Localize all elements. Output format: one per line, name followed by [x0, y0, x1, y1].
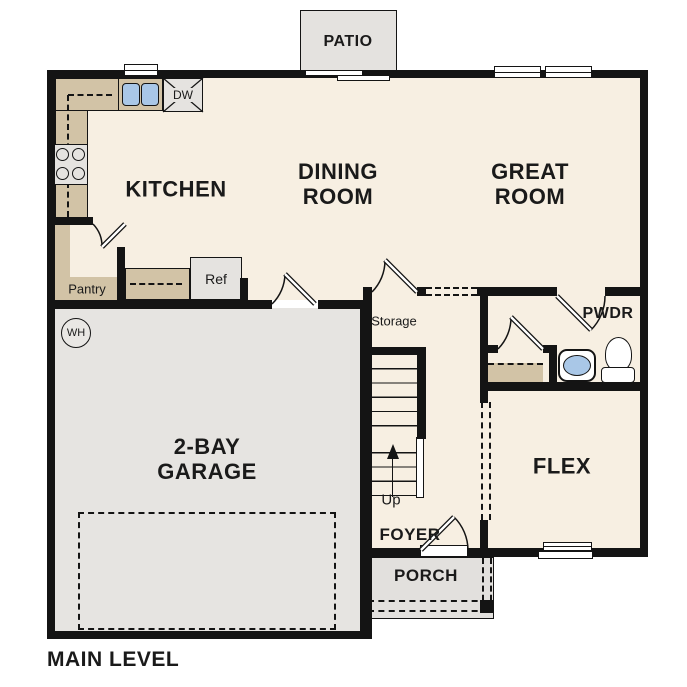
floor-plan: DW Ref WH [0, 0, 687, 687]
up-label: Up [381, 492, 400, 509]
dishwasher-label: DW [172, 88, 194, 102]
flex-cased-opening [481, 402, 483, 520]
garage-door-outline [78, 512, 336, 630]
stairs-upper-run [372, 355, 417, 439]
flex-window [543, 542, 592, 551]
pantry-label: Pantry [68, 282, 106, 297]
flex-cased-opening [489, 402, 491, 520]
dining-line1: DINING [298, 159, 378, 184]
water-heater-label: WH [67, 327, 85, 339]
stair-railing [416, 437, 424, 498]
refrigerator-label: Ref [205, 271, 227, 287]
kitchen-window [124, 64, 158, 76]
wall [364, 548, 420, 557]
closet-shelf [488, 363, 543, 382]
pedestal-sink-bowl [563, 355, 591, 376]
refrigerator: Ref [190, 257, 242, 300]
wall [117, 247, 125, 300]
great-room-label: GREAT ROOM [491, 159, 569, 209]
great-room-window [545, 66, 592, 78]
foyer-label: FOYER [379, 525, 440, 545]
wall [417, 347, 426, 439]
wall [47, 70, 55, 639]
wall [480, 345, 498, 353]
toilet-tank [601, 367, 635, 383]
porch-label: PORCH [394, 566, 458, 586]
wall [480, 296, 488, 391]
wall [605, 287, 648, 296]
stove-burner [72, 167, 85, 180]
great-room-opening [426, 287, 477, 296]
wall [363, 287, 372, 300]
wall [363, 347, 426, 355]
wall [480, 520, 488, 548]
dining-room-label: DINING ROOM [298, 159, 378, 209]
dining-line2: ROOM [298, 184, 378, 209]
water-heater: WH [61, 318, 91, 348]
up-arrow-head [387, 444, 399, 459]
patio-label: PATIO [323, 33, 372, 51]
garage-line2: GARAGE [157, 459, 257, 484]
stove-burner [56, 148, 69, 161]
wall [47, 217, 93, 225]
cabinet-dash-top [68, 94, 112, 96]
front-door-slab [420, 545, 468, 557]
flex-label: FLEX [533, 454, 591, 479]
patio-slider-panel [337, 75, 390, 81]
storage-label: Storage [371, 314, 417, 329]
garage-line1: 2-BAY [157, 434, 257, 459]
wall [468, 548, 480, 557]
wall [640, 70, 648, 557]
sink-bowl-right [141, 83, 159, 106]
dishwasher: DW [163, 78, 203, 112]
great-line1: GREAT [491, 159, 569, 184]
pwdr-flex-floor [480, 287, 640, 557]
wall [480, 382, 648, 391]
wall [240, 278, 248, 300]
wall [47, 300, 272, 309]
great-room-window [494, 66, 541, 78]
porch-edge-dash [368, 600, 488, 602]
sink-bowl-left [122, 83, 140, 106]
cabinet-dash-pantry [130, 283, 182, 285]
pwdr-label: PWDR [583, 305, 634, 323]
porch-edge-dash [368, 610, 488, 612]
stove-burner [56, 167, 69, 180]
great-line2: ROOM [491, 184, 569, 209]
flex-window-sill [538, 551, 593, 559]
stove-burner [72, 148, 85, 161]
wall [477, 287, 557, 296]
page-title: MAIN LEVEL [47, 648, 179, 672]
garage-label: 2-BAY GARAGE [157, 434, 257, 484]
porch-post [480, 600, 493, 613]
toilet-bowl [605, 337, 632, 371]
kitchen-label: KITCHEN [125, 177, 226, 202]
wall [417, 287, 426, 296]
wall [47, 631, 372, 639]
